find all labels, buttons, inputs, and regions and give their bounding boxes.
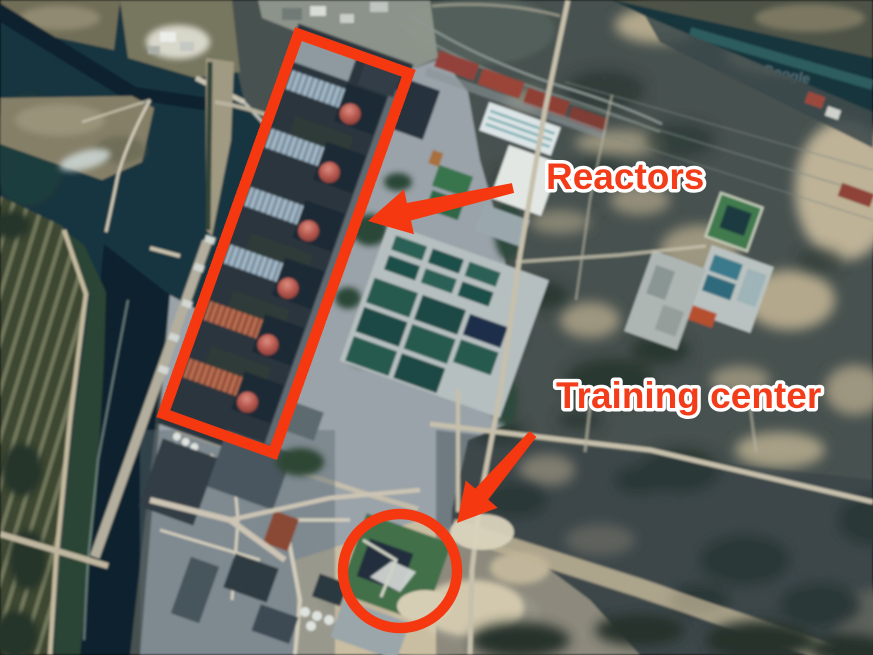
svg-text:Training center: Training center (556, 375, 821, 416)
svg-text:Reactors: Reactors (546, 156, 704, 197)
